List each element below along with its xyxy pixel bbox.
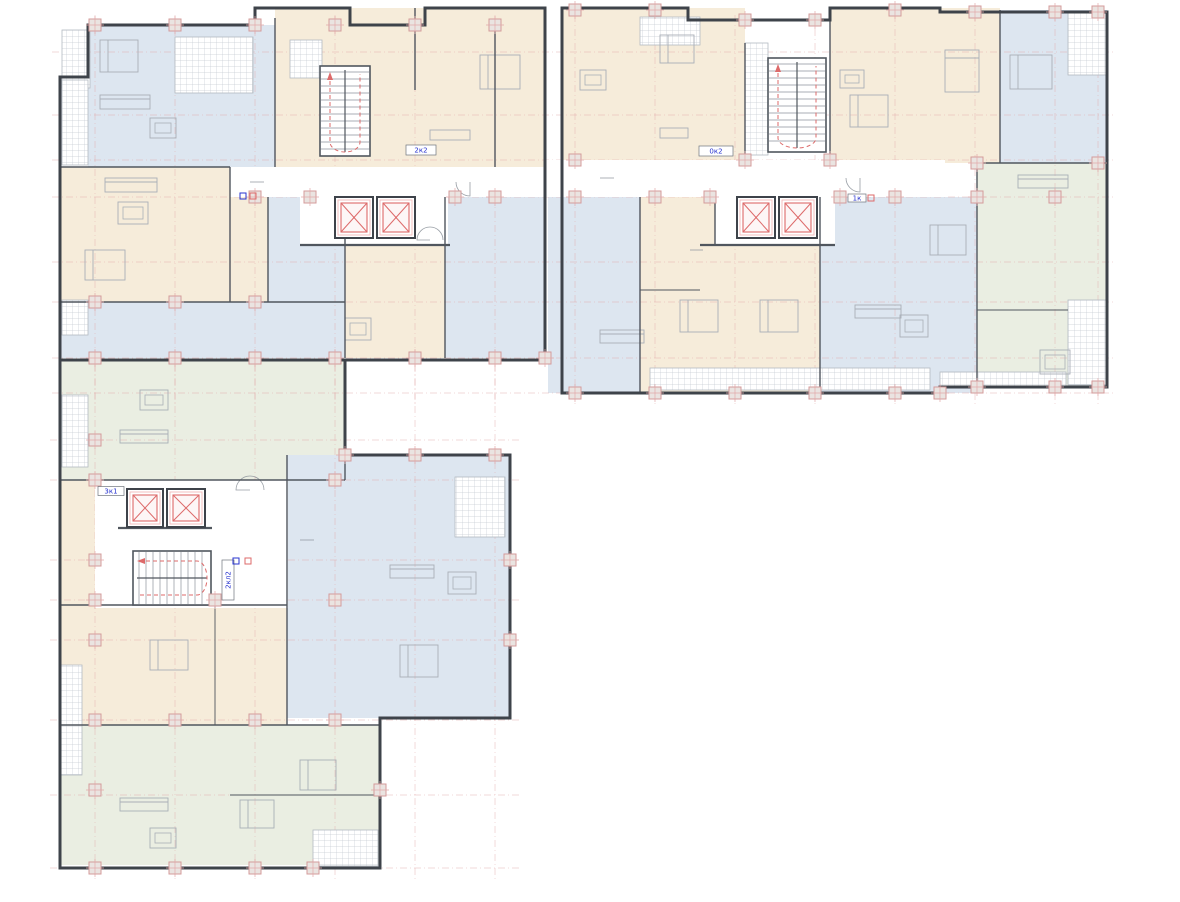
balcony-hatch xyxy=(60,665,82,775)
apartment-label: 2кл2 xyxy=(224,571,232,589)
balcony-hatch xyxy=(62,395,88,467)
balcony-hatch xyxy=(455,477,505,537)
floor-plan-canvas: 2к20к21к3к12кл2 xyxy=(0,0,1180,902)
balcony-hatch xyxy=(175,37,253,93)
balcony-hatch xyxy=(1068,300,1107,385)
apartment-region-apt-mid-bath xyxy=(640,197,715,245)
balcony-hatch xyxy=(62,30,90,88)
balcony-hatch xyxy=(1068,12,1107,75)
balcony-hatch xyxy=(745,43,768,155)
apartment-region-apt-mid-top-right xyxy=(830,8,1000,163)
apartment-region-apt-left-bottom xyxy=(60,302,345,358)
balcony-hatch xyxy=(62,80,88,165)
apartment-label: 1к xyxy=(853,194,862,202)
apartment-region-apt-mid-bottom-right xyxy=(820,197,977,393)
apartment-region-apt-top-left-2 xyxy=(275,8,545,167)
balcony-hatch xyxy=(290,40,322,78)
apartment-label: 2к2 xyxy=(414,146,427,154)
apartment-label: 3к1 xyxy=(104,487,117,495)
balcony-hatch xyxy=(650,368,930,390)
balcony-hatch xyxy=(62,300,88,335)
apartment-region-apt-wing-left-strip xyxy=(60,480,95,605)
balcony-hatch xyxy=(313,830,378,866)
apartment-label: 0к2 xyxy=(709,147,722,155)
apartment-region-apt-wing-cream xyxy=(60,605,287,725)
floor-plan-svg: 2к20к21к3к12кл2 xyxy=(0,0,1180,902)
